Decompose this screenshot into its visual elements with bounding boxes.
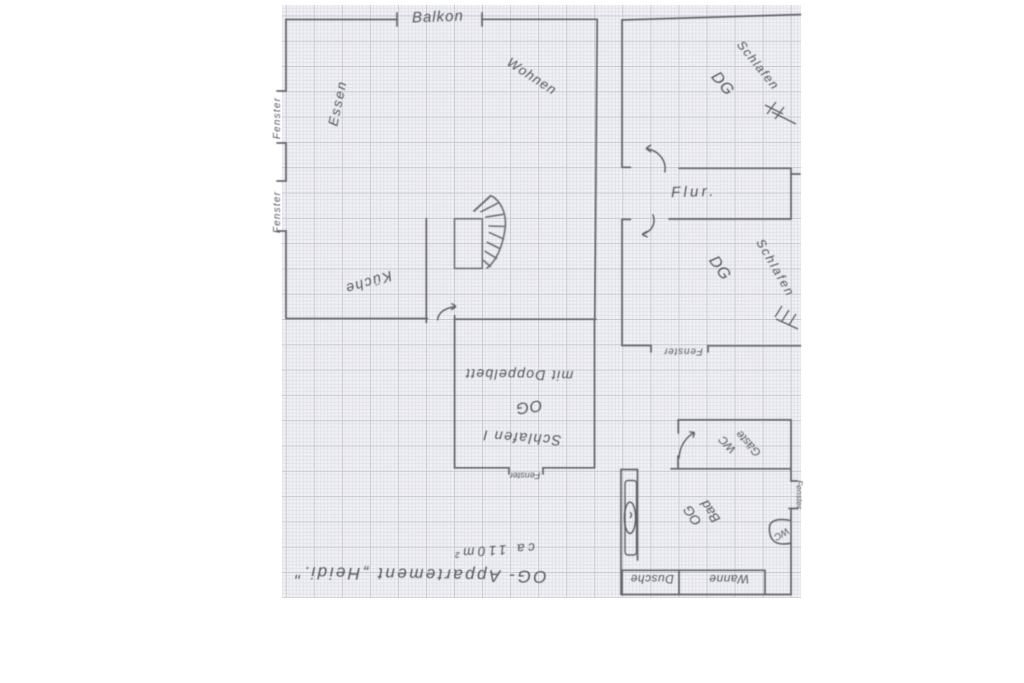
svg-text:Balkon: Balkon xyxy=(412,8,464,27)
svg-text:Fenster: Fenster xyxy=(663,346,703,357)
svg-text:Dusche: Dusche xyxy=(630,572,674,586)
svg-text:Fenster: Fenster xyxy=(509,471,541,481)
svg-text:Fenster: Fenster xyxy=(272,191,283,233)
svg-text:Wanne: Wanne xyxy=(709,572,749,586)
svg-text:mit Doppelbett: mit Doppelbett xyxy=(465,366,574,384)
svg-text:Fenster: Fenster xyxy=(795,480,805,510)
svg-text:Flur.: Flur. xyxy=(671,183,717,202)
svg-text:Fenster: Fenster xyxy=(272,97,283,139)
